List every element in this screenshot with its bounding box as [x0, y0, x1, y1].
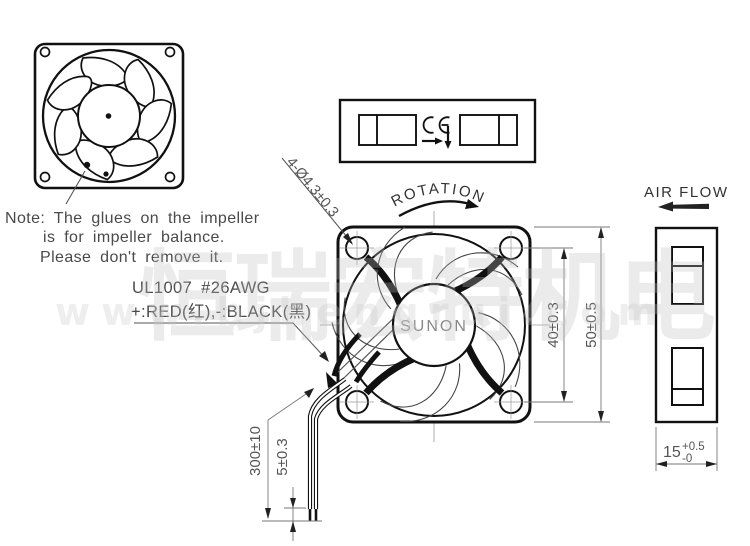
side-view-outline — [656, 228, 717, 422]
fan-technical-drawing: Note: The glues on the impeller is for i… — [0, 0, 750, 546]
hole-pitch-dim: 40±0.3 — [545, 302, 562, 348]
wire-spec-leader — [134, 323, 327, 360]
wire-spec-line-2: +:RED(红),-:BLACK(黑) — [131, 302, 311, 321]
mounting-holes-dim: 4-Ø4.3±0.3 — [283, 154, 341, 220]
right-side-view: AIR FLOW — [644, 184, 729, 422]
lead-length-dim: 300±10 — [247, 426, 264, 476]
balance-glue-dot-2 — [103, 171, 108, 176]
balance-glue-dot-1 — [84, 162, 90, 168]
frame-dimensions: 40±0.3 50±0.5 — [524, 227, 610, 422]
strip-length-dim: 5±0.3 — [274, 438, 291, 475]
air-flow-arrow-icon — [658, 202, 709, 212]
thickness-dimension: 15 +0.5 -0 — [656, 427, 717, 471]
rotation-label: ROTATION — [389, 180, 489, 216]
note-line-2: is for impeller balance. — [43, 229, 225, 246]
wire-spec-callout: UL1007 #26AWG +:RED(红),-:BLACK(黑) — [131, 279, 329, 362]
note-line-1: Note: The glues on the impeller — [5, 210, 260, 227]
mounting-hole-callout: 4-Ø4.3±0.3 — [282, 154, 353, 245]
rear-view-fan: SUNON — [320, 211, 550, 442]
top-view-outline — [340, 100, 535, 162]
frame-size-dim: 50±0.5 — [583, 302, 600, 348]
thickness-lower-tol: -0 — [682, 453, 692, 465]
top-side-view — [340, 100, 535, 162]
thickness-upper-tol: +0.5 — [682, 441, 705, 453]
wire-spec-line-1: UL1007 #26AWG — [132, 279, 270, 297]
thickness-value: 15 — [663, 444, 681, 461]
drawing-svg: Note: The glues on the impeller is for i… — [0, 0, 750, 546]
brand-label: SUNON — [400, 318, 468, 335]
air-flow-label: AIR FLOW — [644, 184, 729, 201]
note-line-3: Please don't remove it. — [40, 249, 223, 266]
front-view-fan — [35, 44, 183, 204]
impeller-note: Note: The glues on the impeller is for i… — [5, 210, 260, 266]
front-hub-center-dot — [106, 113, 112, 119]
